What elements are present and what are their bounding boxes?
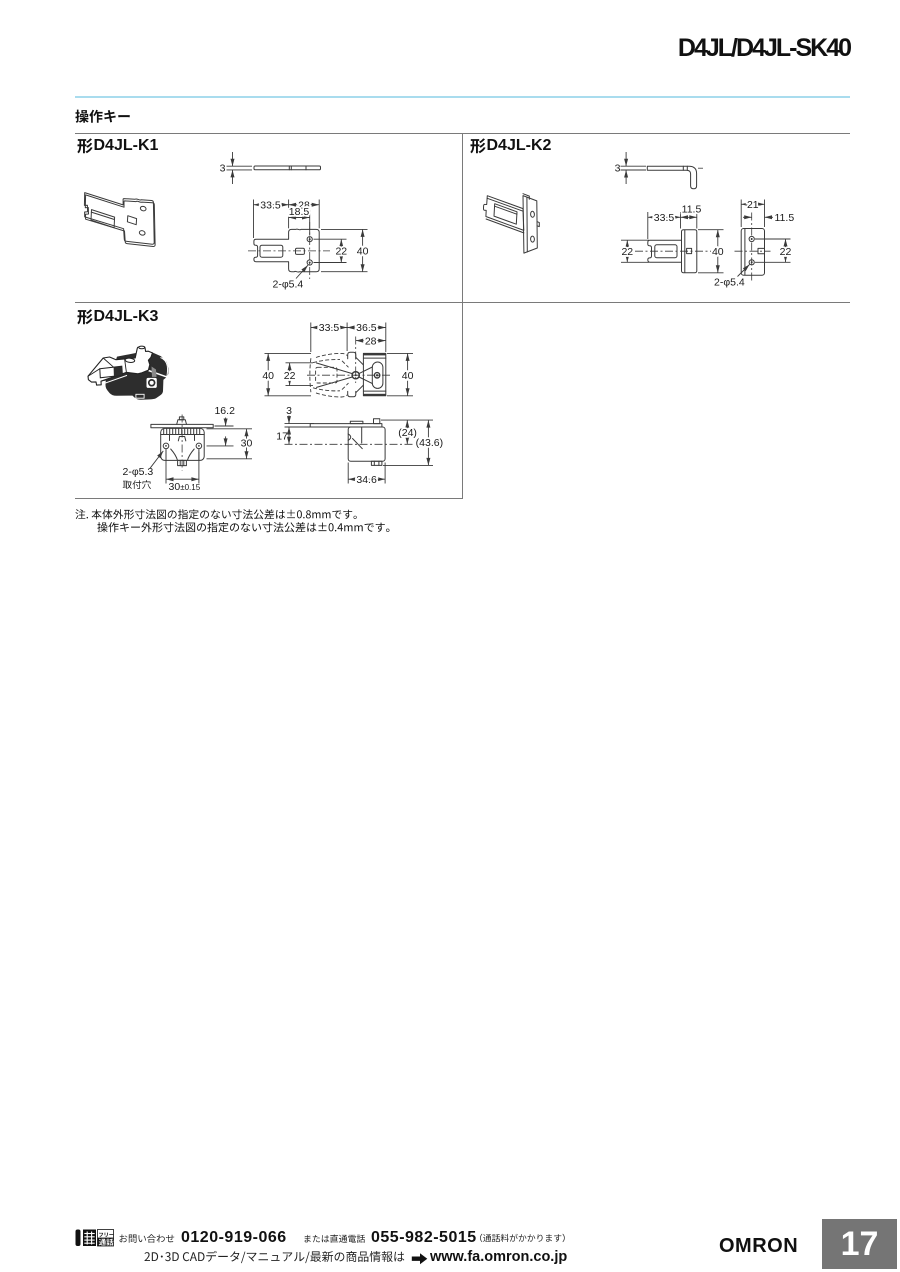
svg-text:(24): (24) (398, 427, 417, 439)
svg-text:17: 17 (276, 431, 288, 443)
svg-text:11.5: 11.5 (775, 212, 795, 224)
svg-text:16.2: 16.2 (214, 405, 235, 417)
svg-text:28: 28 (365, 335, 377, 347)
svg-text:40: 40 (262, 370, 274, 382)
svg-text:3: 3 (220, 163, 226, 175)
svg-text:11.5: 11.5 (682, 203, 702, 215)
svg-text:22: 22 (780, 246, 792, 258)
svg-text:3: 3 (615, 163, 621, 175)
svg-text:30: 30 (241, 438, 253, 450)
svg-text:30±0.15: 30±0.15 (169, 481, 201, 493)
svg-text:40: 40 (357, 246, 369, 258)
svg-text:21: 21 (747, 199, 759, 211)
svg-text:40: 40 (402, 370, 414, 382)
svg-text:22: 22 (335, 246, 347, 258)
svg-text:22: 22 (284, 370, 296, 382)
svg-text:2-φ5.4: 2-φ5.4 (273, 279, 304, 291)
svg-text:36.5: 36.5 (356, 322, 377, 334)
svg-text:2-φ5.4: 2-φ5.4 (714, 277, 745, 289)
svg-text:18.5: 18.5 (289, 206, 310, 218)
svg-text:2-φ5.3: 2-φ5.3 (123, 466, 154, 478)
svg-text:33.5: 33.5 (319, 322, 340, 334)
svg-text:22: 22 (621, 246, 633, 258)
svg-text:(43.6): (43.6) (416, 437, 443, 449)
svg-text:3: 3 (286, 405, 292, 417)
svg-text:33.5: 33.5 (654, 212, 675, 224)
svg-text:33.5: 33.5 (260, 199, 281, 211)
svg-text:40: 40 (712, 246, 724, 258)
svg-text:34.6: 34.6 (356, 474, 377, 486)
